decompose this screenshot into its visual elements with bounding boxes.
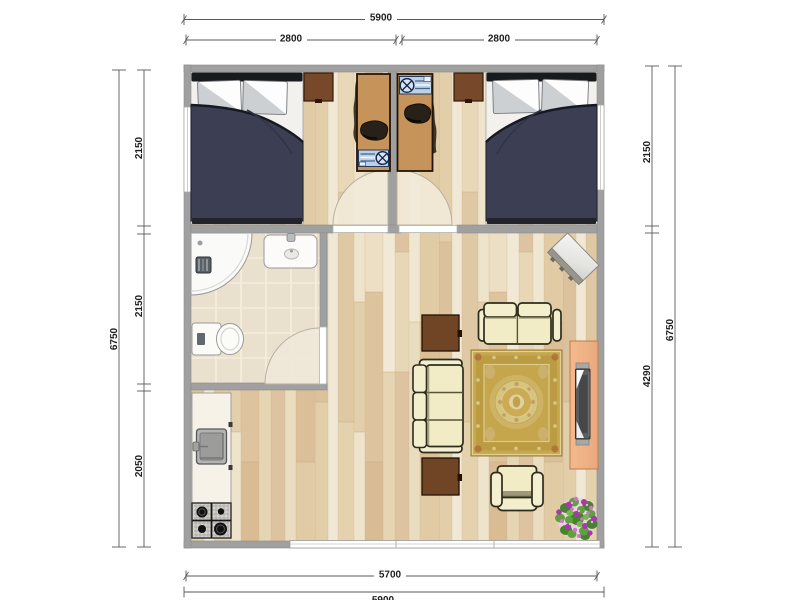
svg-text:5900: 5900 [370, 13, 393, 24]
svg-text:6750: 6750 [109, 327, 120, 350]
svg-text:2800: 2800 [488, 34, 511, 45]
svg-text:2050: 2050 [134, 454, 145, 477]
svg-text:2150: 2150 [642, 140, 653, 163]
svg-text:6750: 6750 [665, 318, 676, 341]
svg-text:5700: 5700 [379, 570, 402, 581]
svg-text:2150: 2150 [134, 294, 145, 317]
svg-text:2800: 2800 [280, 34, 303, 45]
svg-text:5900: 5900 [372, 595, 395, 600]
svg-text:4290: 4290 [642, 364, 653, 387]
svg-text:2150: 2150 [134, 136, 145, 159]
